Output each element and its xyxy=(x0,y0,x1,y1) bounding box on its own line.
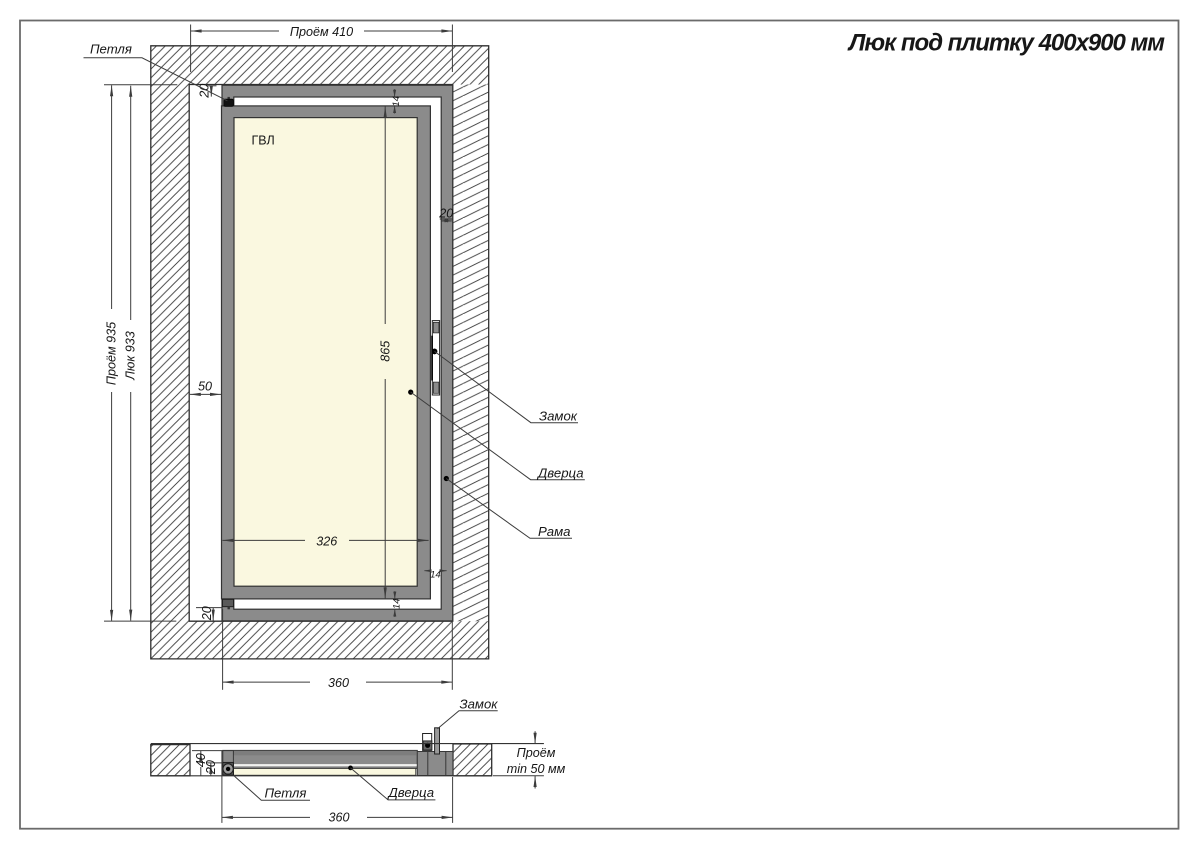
svg-text:360: 360 xyxy=(328,676,349,690)
svg-text:Проём: Проём xyxy=(517,746,556,760)
svg-text:14: 14 xyxy=(430,569,441,580)
svg-text:50: 50 xyxy=(198,380,212,394)
svg-text:326: 326 xyxy=(316,534,337,548)
svg-text:Петля: Петля xyxy=(265,786,307,801)
svg-text:Проём 935: Проём 935 xyxy=(104,321,118,385)
svg-text:Петля: Петля xyxy=(90,42,132,57)
svg-text:Дверца: Дверца xyxy=(387,785,435,800)
svg-text:360: 360 xyxy=(328,811,349,825)
svg-text:14: 14 xyxy=(391,599,402,610)
svg-text:20: 20 xyxy=(204,760,218,775)
svg-text:14: 14 xyxy=(391,96,402,107)
svg-text:Проём 410: Проём 410 xyxy=(290,25,353,39)
svg-text:ГВЛ: ГВЛ xyxy=(252,134,275,148)
svg-text:min 50 мм: min 50 мм xyxy=(507,762,566,776)
svg-text:20: 20 xyxy=(200,606,214,621)
svg-text:Дверца: Дверца xyxy=(536,466,584,481)
svg-text:Замок: Замок xyxy=(539,409,578,424)
svg-text:Замок: Замок xyxy=(460,697,499,712)
svg-text:Рама: Рама xyxy=(538,524,571,539)
svg-text:Люк 933: Люк 933 xyxy=(124,331,138,381)
svg-text:20: 20 xyxy=(438,206,453,220)
svg-text:865: 865 xyxy=(379,340,393,362)
svg-text:Люк под плитку 400х900 мм: Люк под плитку 400х900 мм xyxy=(847,30,1165,57)
